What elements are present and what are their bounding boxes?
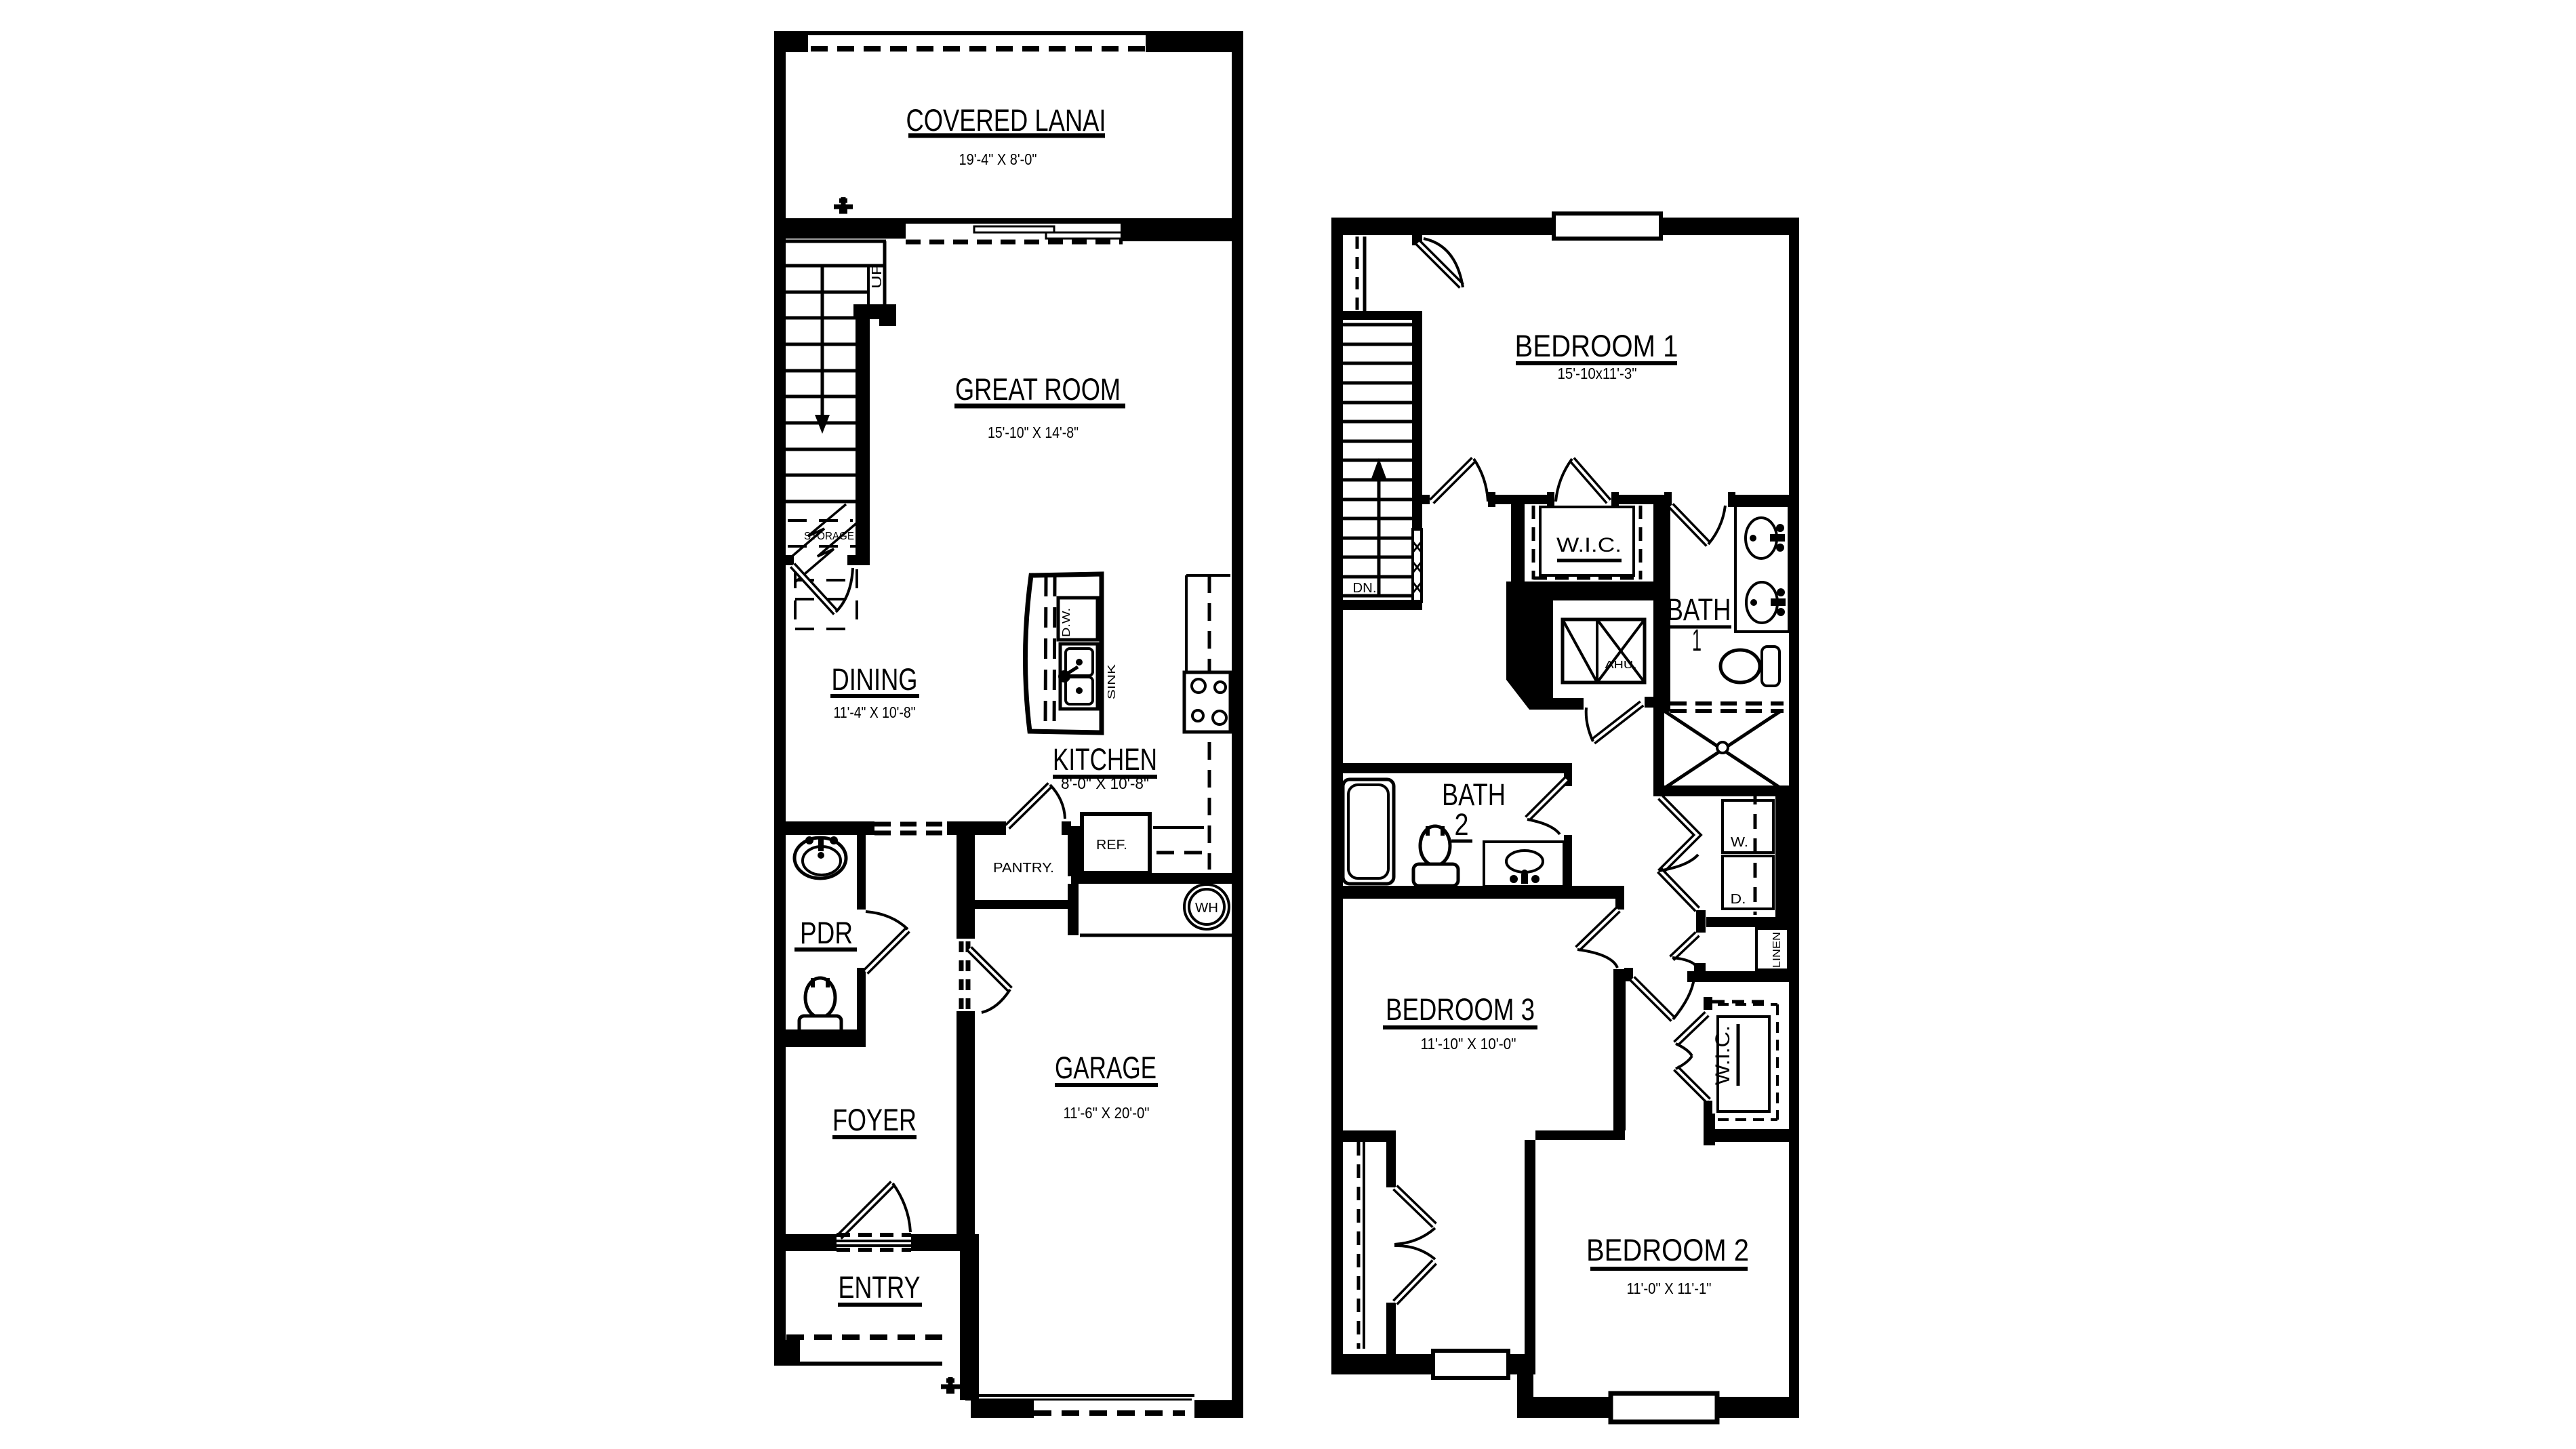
svg-text:GREAT ROOM: GREAT ROOM [955, 372, 1121, 407]
svg-text:STORAGE: STORAGE [804, 531, 854, 542]
svg-text:11'-6" X 20'-0": 11'-6" X 20'-0" [1064, 1104, 1150, 1122]
svg-text:BEDROOM 1: BEDROOM 1 [1515, 329, 1678, 363]
svg-text:COVERED LANAI: COVERED LANAI [906, 103, 1106, 138]
svg-text:D.W.: D.W. [1061, 608, 1072, 637]
svg-text:11'-4" X 10'-8": 11'-4" X 10'-8" [834, 703, 916, 721]
svg-text:D.: D. [1731, 892, 1746, 907]
svg-text:15'-10" X 14'-8": 15'-10" X 14'-8" [988, 424, 1079, 441]
svg-text:AHU.: AHU. [1605, 659, 1637, 671]
svg-text:GARAGE: GARAGE [1055, 1050, 1156, 1085]
svg-text:BEDROOM 2: BEDROOM 2 [1586, 1233, 1749, 1267]
svg-text:PDR: PDR [800, 916, 853, 950]
svg-text:8'-0" X 10'-8": 8'-0" X 10'-8" [1061, 775, 1149, 792]
svg-text:DINING: DINING [832, 662, 918, 697]
svg-text:REF.: REF. [1096, 838, 1127, 853]
svg-text:11'-0" X 11'-1": 11'-0" X 11'-1" [1627, 1280, 1712, 1297]
svg-text:W.I.C.: W.I.C. [1556, 534, 1622, 556]
svg-text:W.I.C.: W.I.C. [1712, 1025, 1734, 1085]
svg-text:15'-10x11'-3": 15'-10x11'-3" [1558, 365, 1637, 382]
svg-text:KITCHEN: KITCHEN [1053, 742, 1157, 777]
svg-text:2: 2 [1455, 807, 1469, 842]
svg-text:1: 1 [1692, 623, 1702, 657]
svg-text:DN.: DN. [1353, 581, 1377, 596]
svg-text:BATH: BATH [1667, 592, 1731, 627]
svg-text:BEDROOM 3: BEDROOM 3 [1386, 992, 1535, 1027]
svg-text:W.: W. [1731, 835, 1748, 850]
svg-text:11'-10" X 10'-0": 11'-10" X 10'-0" [1421, 1035, 1516, 1053]
svg-text:19'-4" X 8'-0": 19'-4" X 8'-0" [959, 150, 1037, 168]
svg-text:ENTRY: ENTRY [839, 1270, 921, 1305]
svg-text:PANTRY.: PANTRY. [993, 861, 1054, 876]
svg-text:BATH: BATH [1442, 777, 1506, 812]
svg-text:LINEN: LINEN [1771, 932, 1783, 968]
svg-text:SINK: SINK [1106, 664, 1118, 699]
svg-text:WH: WH [1195, 901, 1218, 916]
svg-text:FOYER: FOYER [832, 1103, 917, 1137]
